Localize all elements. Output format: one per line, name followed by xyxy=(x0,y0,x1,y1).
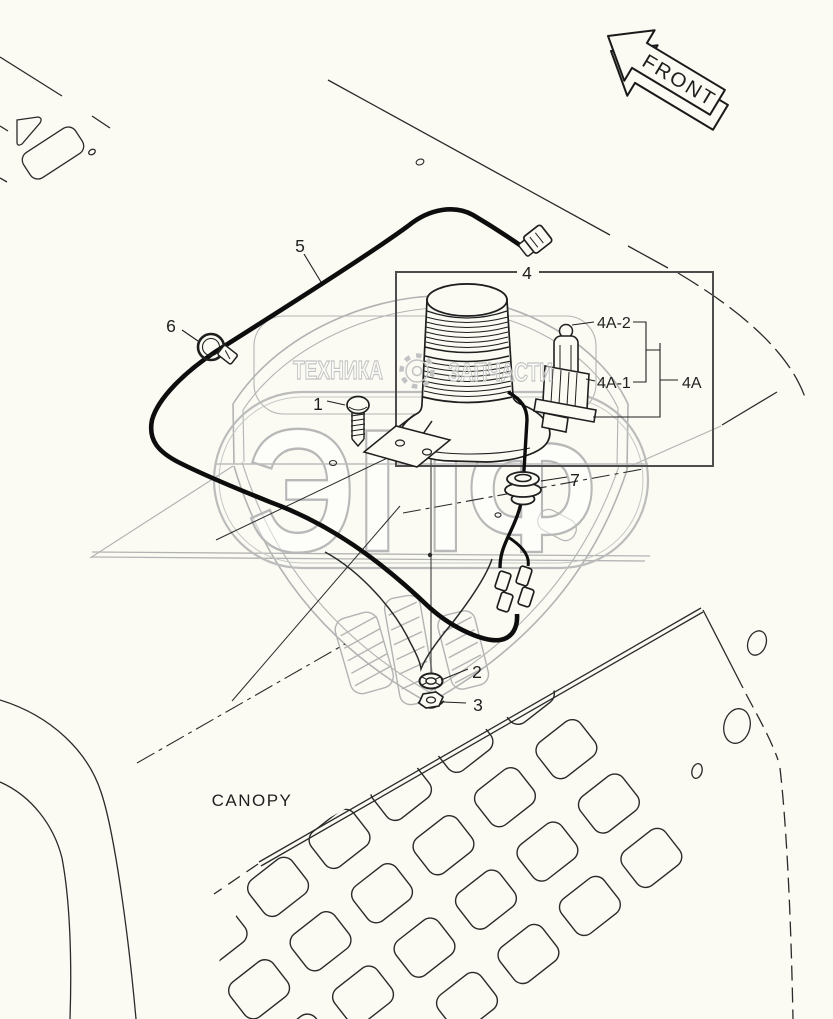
left-post-curves xyxy=(0,700,136,1019)
part-label-4a: 4A xyxy=(682,375,702,392)
canopy-label: CANOPY xyxy=(212,791,293,810)
parts-diagram-canvas: ЭПФ xyxy=(0,0,833,1019)
part-label-1: 1 xyxy=(313,394,323,414)
part-label-3: 3 xyxy=(473,695,483,715)
nut xyxy=(418,692,444,708)
part-label-4a2: 4A-2 xyxy=(597,315,631,332)
roof-edge-line xyxy=(328,80,668,268)
parts-diagram-page: ЭПФ xyxy=(0,0,833,1019)
part-label-4a1: 4A-1 xyxy=(597,375,631,392)
watermark-word-1: ТЕХНИКА xyxy=(293,355,383,385)
harness-connector xyxy=(516,224,553,259)
roof-edge-line xyxy=(0,57,110,128)
watermark-word-2: ЗАПЧАСТИ xyxy=(448,357,553,387)
part-label-2: 2 xyxy=(472,662,482,682)
front-arrow: FRONT xyxy=(593,11,736,142)
gear-icon xyxy=(402,356,433,387)
top-left-hatch xyxy=(17,117,41,145)
part-label-4: 4 xyxy=(522,263,532,283)
part-label-7: 7 xyxy=(570,470,580,490)
part-label-6: 6 xyxy=(166,316,176,336)
washer xyxy=(420,674,443,689)
part-label-5: 5 xyxy=(295,236,305,256)
